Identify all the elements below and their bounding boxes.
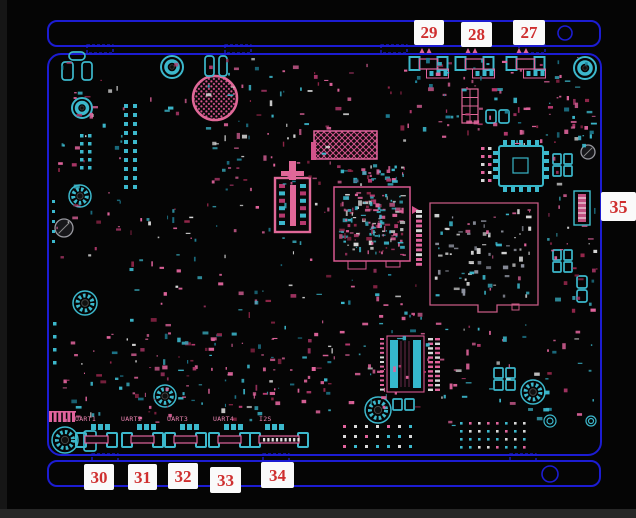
pad-grids [52,104,526,449]
silkscreen-label-uart2: UART2 [121,415,142,423]
main-board-outline [48,54,601,455]
callout-29: 29 [414,20,444,45]
qfn-chip-footprint [499,146,543,186]
comb-footprint [49,411,76,422]
callout-33: 33 [210,467,241,493]
callout-28: 28 [461,22,492,47]
silkscreen-label-uart1: UART1 [75,415,96,423]
bracket-hole-bottom [542,466,558,482]
callout-34: 34 [261,462,294,488]
silkscreen-label-uart3: UART3 [167,415,188,423]
bracket-tabs [87,45,545,461]
discrete-components-scatter [56,57,597,426]
central-ic-tab-left [348,261,366,269]
callout-35: 35 [601,192,636,221]
connector-35-footprint [574,191,590,225]
callout-27: 27 [513,20,545,45]
image-edge-artifact-bottom [0,509,636,518]
callout-31: 31 [128,464,157,490]
pcb-layout-diagram: UART1 UART2 UART3 UART4 I2S 29 28 27 35 … [0,0,636,518]
pcb-board-drawing: UART1 UART2 UART3 UART4 I2S [0,0,636,518]
silkscreen-label-i2s: I2S [259,415,272,423]
silkscreen-text: UART1 UART2 UART3 UART4 I2S [75,415,272,423]
memory-chip-footprint [387,336,424,392]
major-components [193,76,590,392]
relay-cell-footprint [462,89,478,123]
battery-footprint [193,76,237,120]
central-ic-tab-right [386,261,400,267]
crystal-stem [311,142,316,160]
callout-32: 32 [168,463,198,489]
silkscreen-label-uart4: UART4 [213,415,234,423]
crystal-footprint [314,131,377,159]
callout-30: 30 [84,464,114,490]
bracket-hole-top [558,26,572,40]
